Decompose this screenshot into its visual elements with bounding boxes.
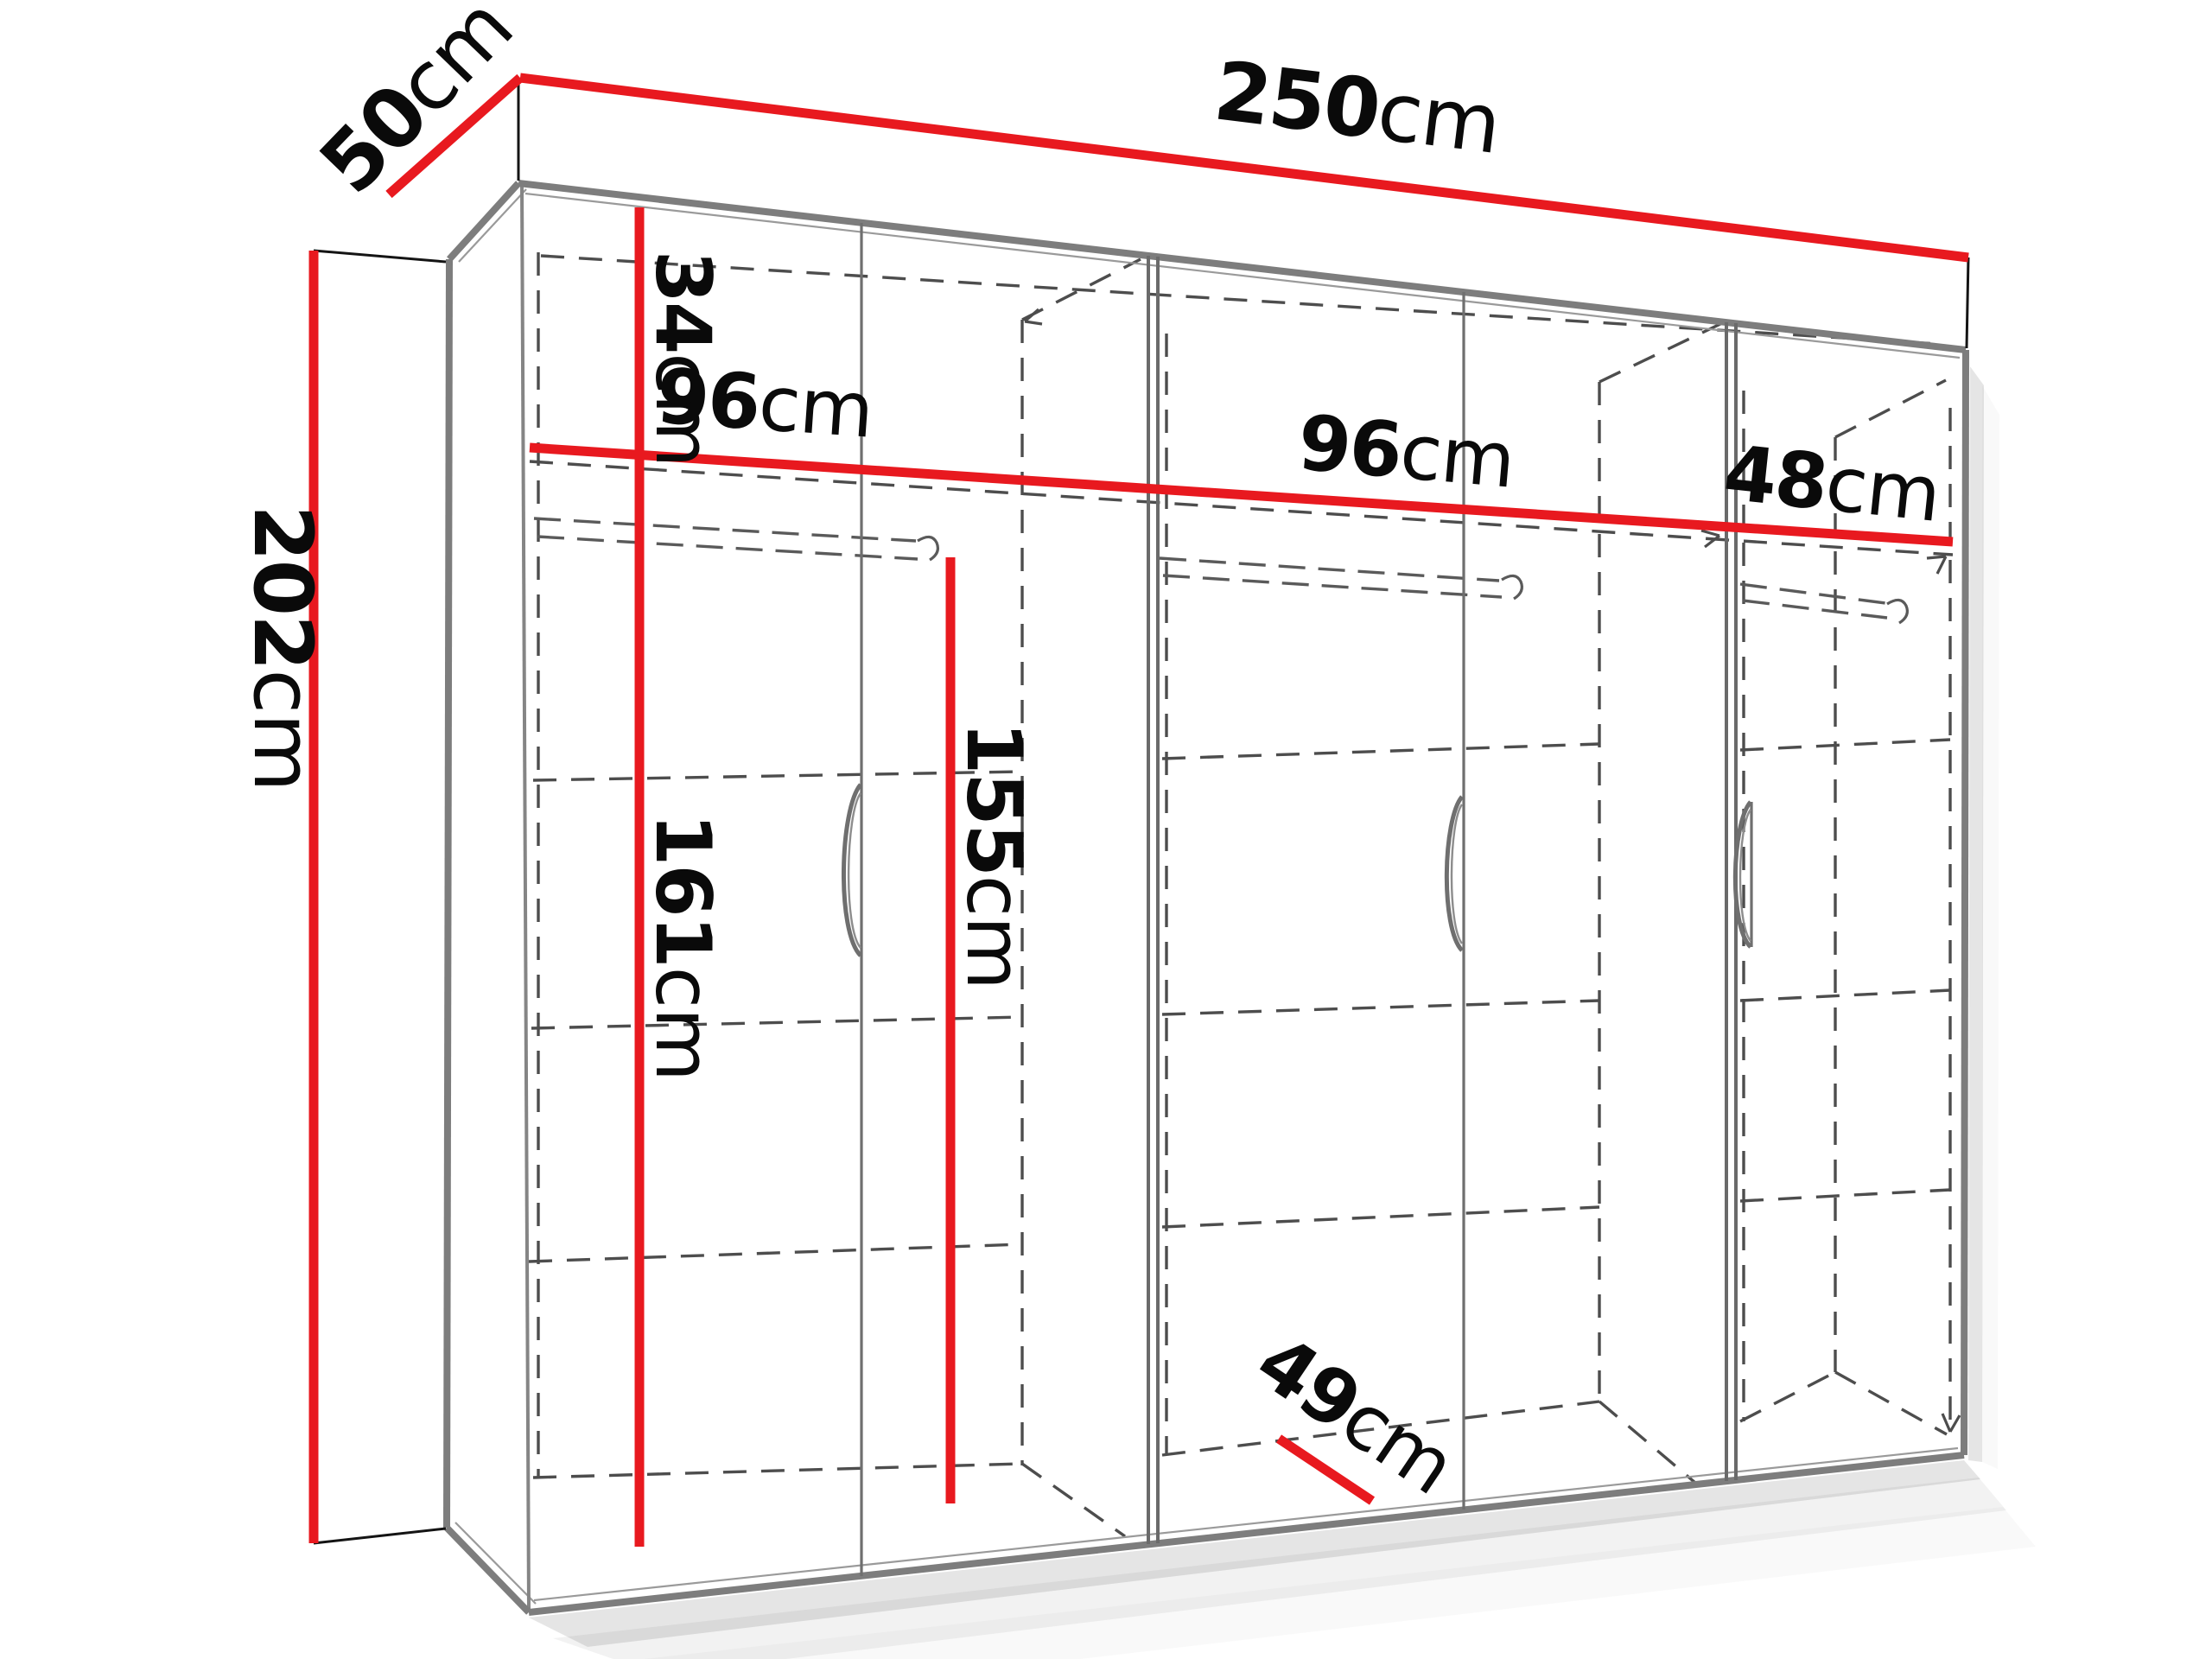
label-left-section: 96cm xyxy=(654,351,876,454)
drop-shadow xyxy=(529,366,2036,1659)
wardrobe-dimension-diagram: 250cm 50cm 202cm 34cm 96cm 96cm 48cm 161… xyxy=(0,0,2212,1659)
label-interior-height: 161cm xyxy=(639,813,728,1081)
door-handle-1 xyxy=(843,785,861,956)
hanging-rail-right xyxy=(1740,584,1907,623)
label-height: 202cm xyxy=(235,505,329,791)
label-width: 250cm xyxy=(1210,44,1505,173)
label-depth: 50cm xyxy=(302,0,531,212)
door-handle-2 xyxy=(1446,797,1462,950)
hanging-rail-middle xyxy=(1160,558,1522,599)
label-right-section: 48cm xyxy=(1719,428,1944,539)
label-hanging-space: 155cm xyxy=(950,721,1039,989)
hanging-rails xyxy=(534,518,1907,623)
label-interior-depth: 49cm xyxy=(1241,1317,1470,1512)
label-middle-section: 96cm xyxy=(1294,397,1518,505)
dimension-lines xyxy=(314,78,1968,1547)
hanging-rail-left xyxy=(534,518,938,560)
diagram-canvas: 250cm 50cm 202cm 34cm 96cm 96cm 48cm 161… xyxy=(0,0,2212,1659)
